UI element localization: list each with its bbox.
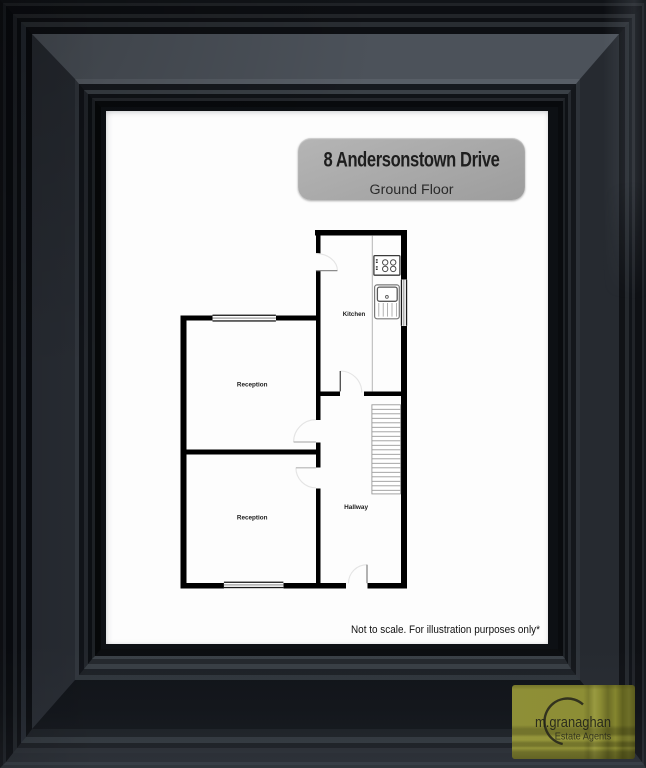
svg-text:Ground Floor: Ground Floor bbox=[370, 182, 455, 197]
svg-text:m.granaghan: m.granaghan bbox=[535, 714, 611, 731]
svg-text:Reception: Reception bbox=[237, 381, 268, 388]
svg-text:Kitchen: Kitchen bbox=[343, 311, 366, 318]
svg-text:Hallway: Hallway bbox=[344, 504, 368, 511]
svg-text:Estate Agents: Estate Agents bbox=[555, 731, 612, 743]
svg-text:8 Andersonstown Drive: 8 Andersonstown Drive bbox=[324, 149, 500, 172]
svg-text:Reception: Reception bbox=[237, 515, 268, 522]
svg-text:Not to scale. For illustration: Not to scale. For illustration purposes … bbox=[351, 624, 541, 636]
